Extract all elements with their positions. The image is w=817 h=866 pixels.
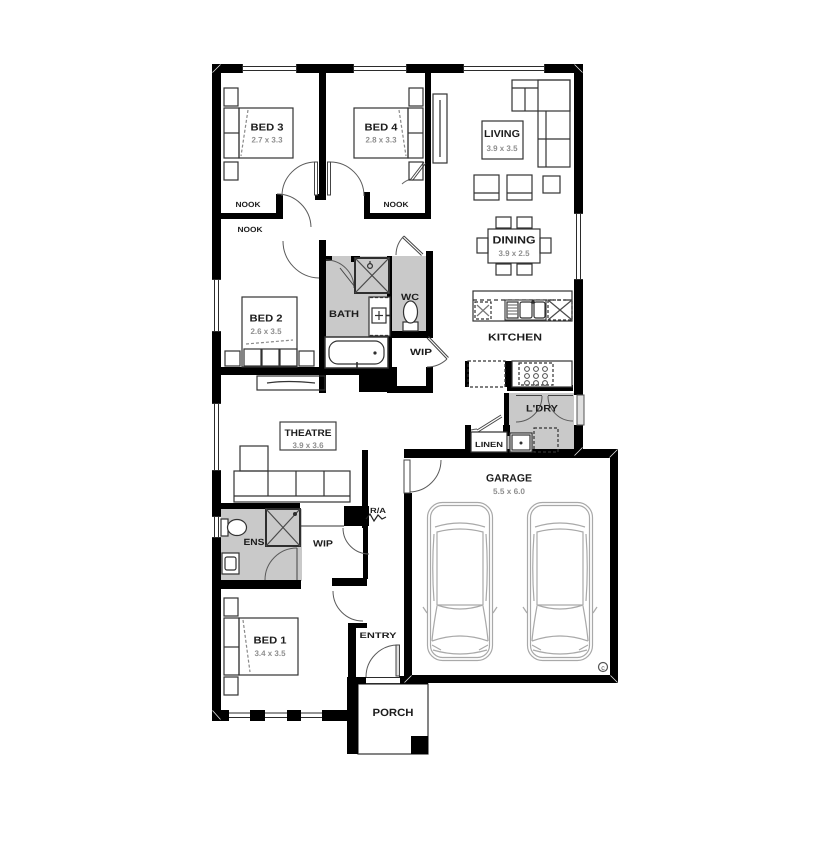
svg-text:NOOK: NOOK	[384, 200, 410, 209]
svg-text:3.9 x 3.6: 3.9 x 3.6	[293, 441, 325, 450]
svg-text:L'DRY: L'DRY	[526, 404, 559, 415]
svg-text:WC: WC	[401, 292, 420, 302]
svg-text:LINEN: LINEN	[475, 440, 503, 449]
svg-text:2.7 x 3.3: 2.7 x 3.3	[252, 136, 284, 145]
svg-text:2.8 x 3.3: 2.8 x 3.3	[366, 136, 398, 145]
svg-text:WIP: WIP	[313, 539, 333, 549]
svg-text:3.9 x 3.5: 3.9 x 3.5	[487, 144, 519, 153]
svg-text:c: c	[601, 665, 605, 672]
svg-text:WIP: WIP	[410, 347, 432, 357]
svg-text:R/A: R/A	[370, 506, 387, 515]
svg-text:2.6 x 3.5: 2.6 x 3.5	[251, 327, 283, 336]
svg-text:BED 3: BED 3	[251, 123, 284, 134]
svg-text:3.4 x 3.5: 3.4 x 3.5	[255, 649, 287, 658]
svg-text:DINING: DINING	[493, 235, 536, 247]
svg-text:KITCHEN: KITCHEN	[488, 333, 542, 344]
svg-text:5.5 x 6.0: 5.5 x 6.0	[493, 487, 526, 496]
svg-text:3.9 x 2.5: 3.9 x 2.5	[499, 249, 531, 258]
svg-text:NOOK: NOOK	[238, 225, 264, 234]
svg-text:ENS: ENS	[244, 537, 265, 547]
svg-text:BATH: BATH	[329, 309, 359, 320]
svg-text:THEATRE: THEATRE	[285, 428, 332, 439]
svg-text:BED 1: BED 1	[254, 636, 287, 647]
svg-text:NOOK: NOOK	[236, 200, 262, 209]
svg-text:BED 4: BED 4	[365, 123, 398, 134]
svg-text:PORCH: PORCH	[373, 707, 414, 719]
svg-text:BED 2: BED 2	[250, 314, 283, 325]
svg-text:ENTRY: ENTRY	[360, 631, 398, 640]
svg-text:LIVING: LIVING	[484, 129, 520, 140]
svg-text:GARAGE: GARAGE	[486, 473, 532, 485]
